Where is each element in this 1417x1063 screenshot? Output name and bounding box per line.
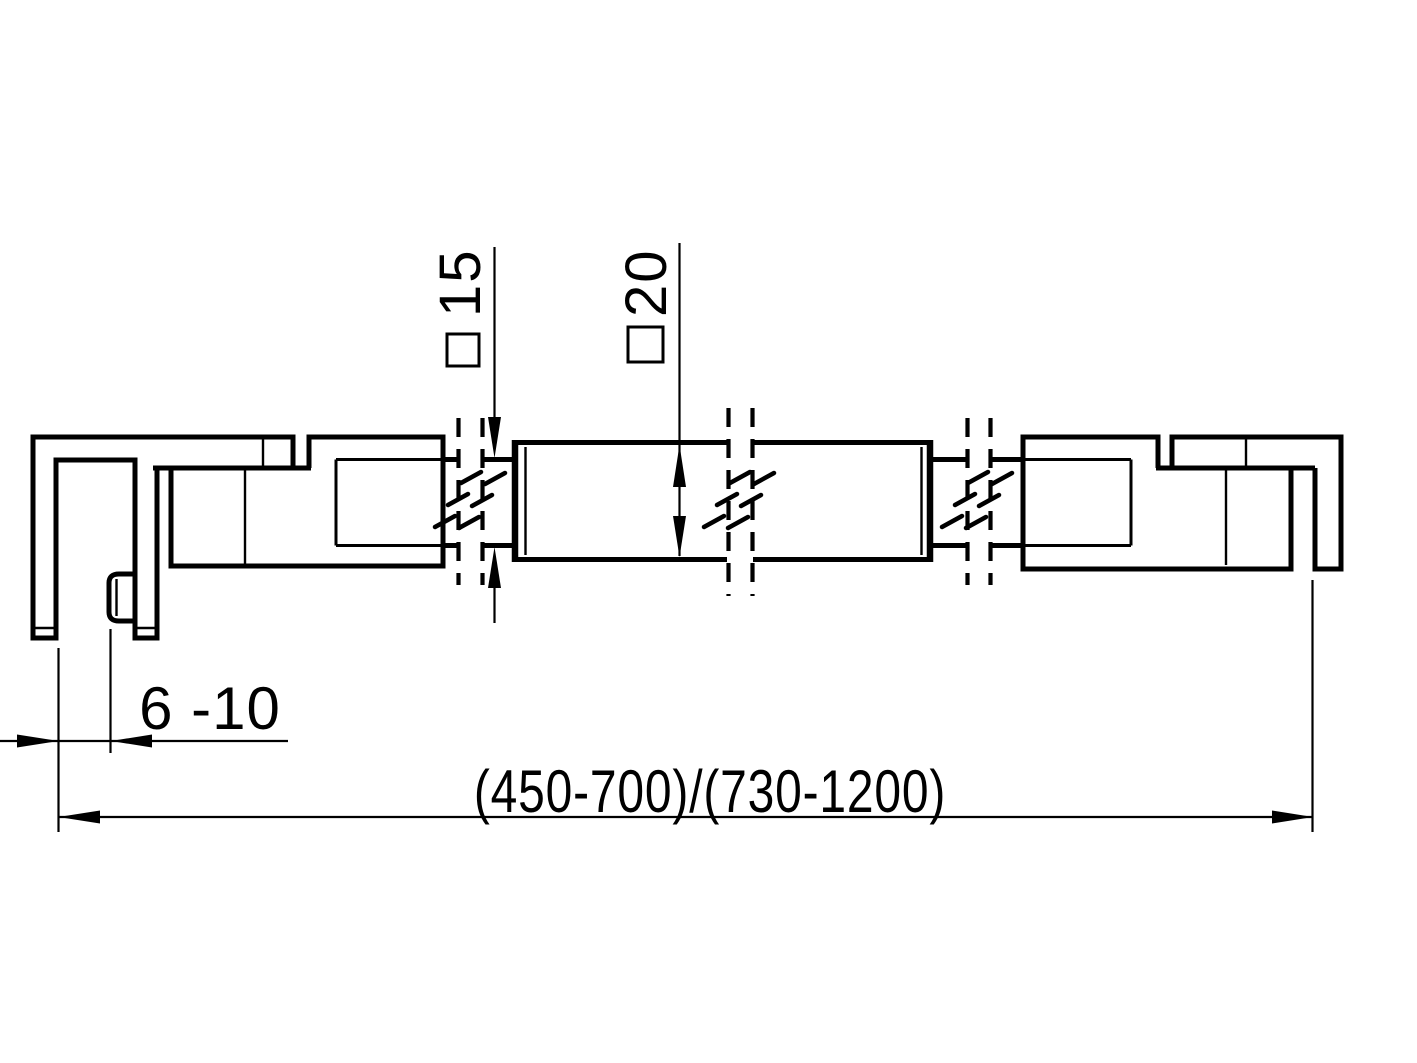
dim-length-arrow-left-icon <box>59 811 101 824</box>
dim-6-10-arrow-right-icon <box>17 735 59 748</box>
dimension-bar-20: 20 <box>614 243 686 557</box>
square-symbol-icon <box>628 327 663 362</box>
break-mark-right <box>942 418 1012 585</box>
dim-20-arrow-up-icon <box>673 445 686 487</box>
dim-20-arrow-down-icon <box>673 516 686 557</box>
dim-overall-length-value: (450-700)/(730-1200) <box>474 758 946 825</box>
dim-15-arrow-down-icon <box>488 417 501 458</box>
left-clamp-rod-socket <box>336 460 441 546</box>
break-mark-center <box>704 408 774 596</box>
dim-20-value: 20 <box>614 248 679 317</box>
dim-15-arrow-up-icon <box>488 547 501 588</box>
right-clamp-rod-socket <box>1025 460 1131 546</box>
stabilizer-bar-drawing: 15 20 6 -10 (450-700)/(730-1200) <box>0 0 1417 1063</box>
left-glass-clamp <box>33 437 443 638</box>
dim-15-value: 15 <box>428 248 493 317</box>
drawing-canvas: 15 20 6 -10 (450-700)/(730-1200) <box>0 0 1417 1063</box>
square-symbol-icon <box>447 334 479 366</box>
right-clamp-jaw-outline <box>1172 437 1341 569</box>
right-glass-clamp <box>1023 437 1341 569</box>
left-clamp-pad <box>109 574 135 621</box>
dim-glass-thickness-value: 6 -10 <box>139 675 281 742</box>
right-clamp-body-outline <box>1023 437 1291 569</box>
dim-length-arrow-right-icon <box>1272 811 1313 824</box>
dimension-glass-thickness: 6 -10 <box>0 629 288 832</box>
break-zigzag-icon <box>704 472 774 528</box>
break-zigzag-icon <box>942 472 1012 528</box>
